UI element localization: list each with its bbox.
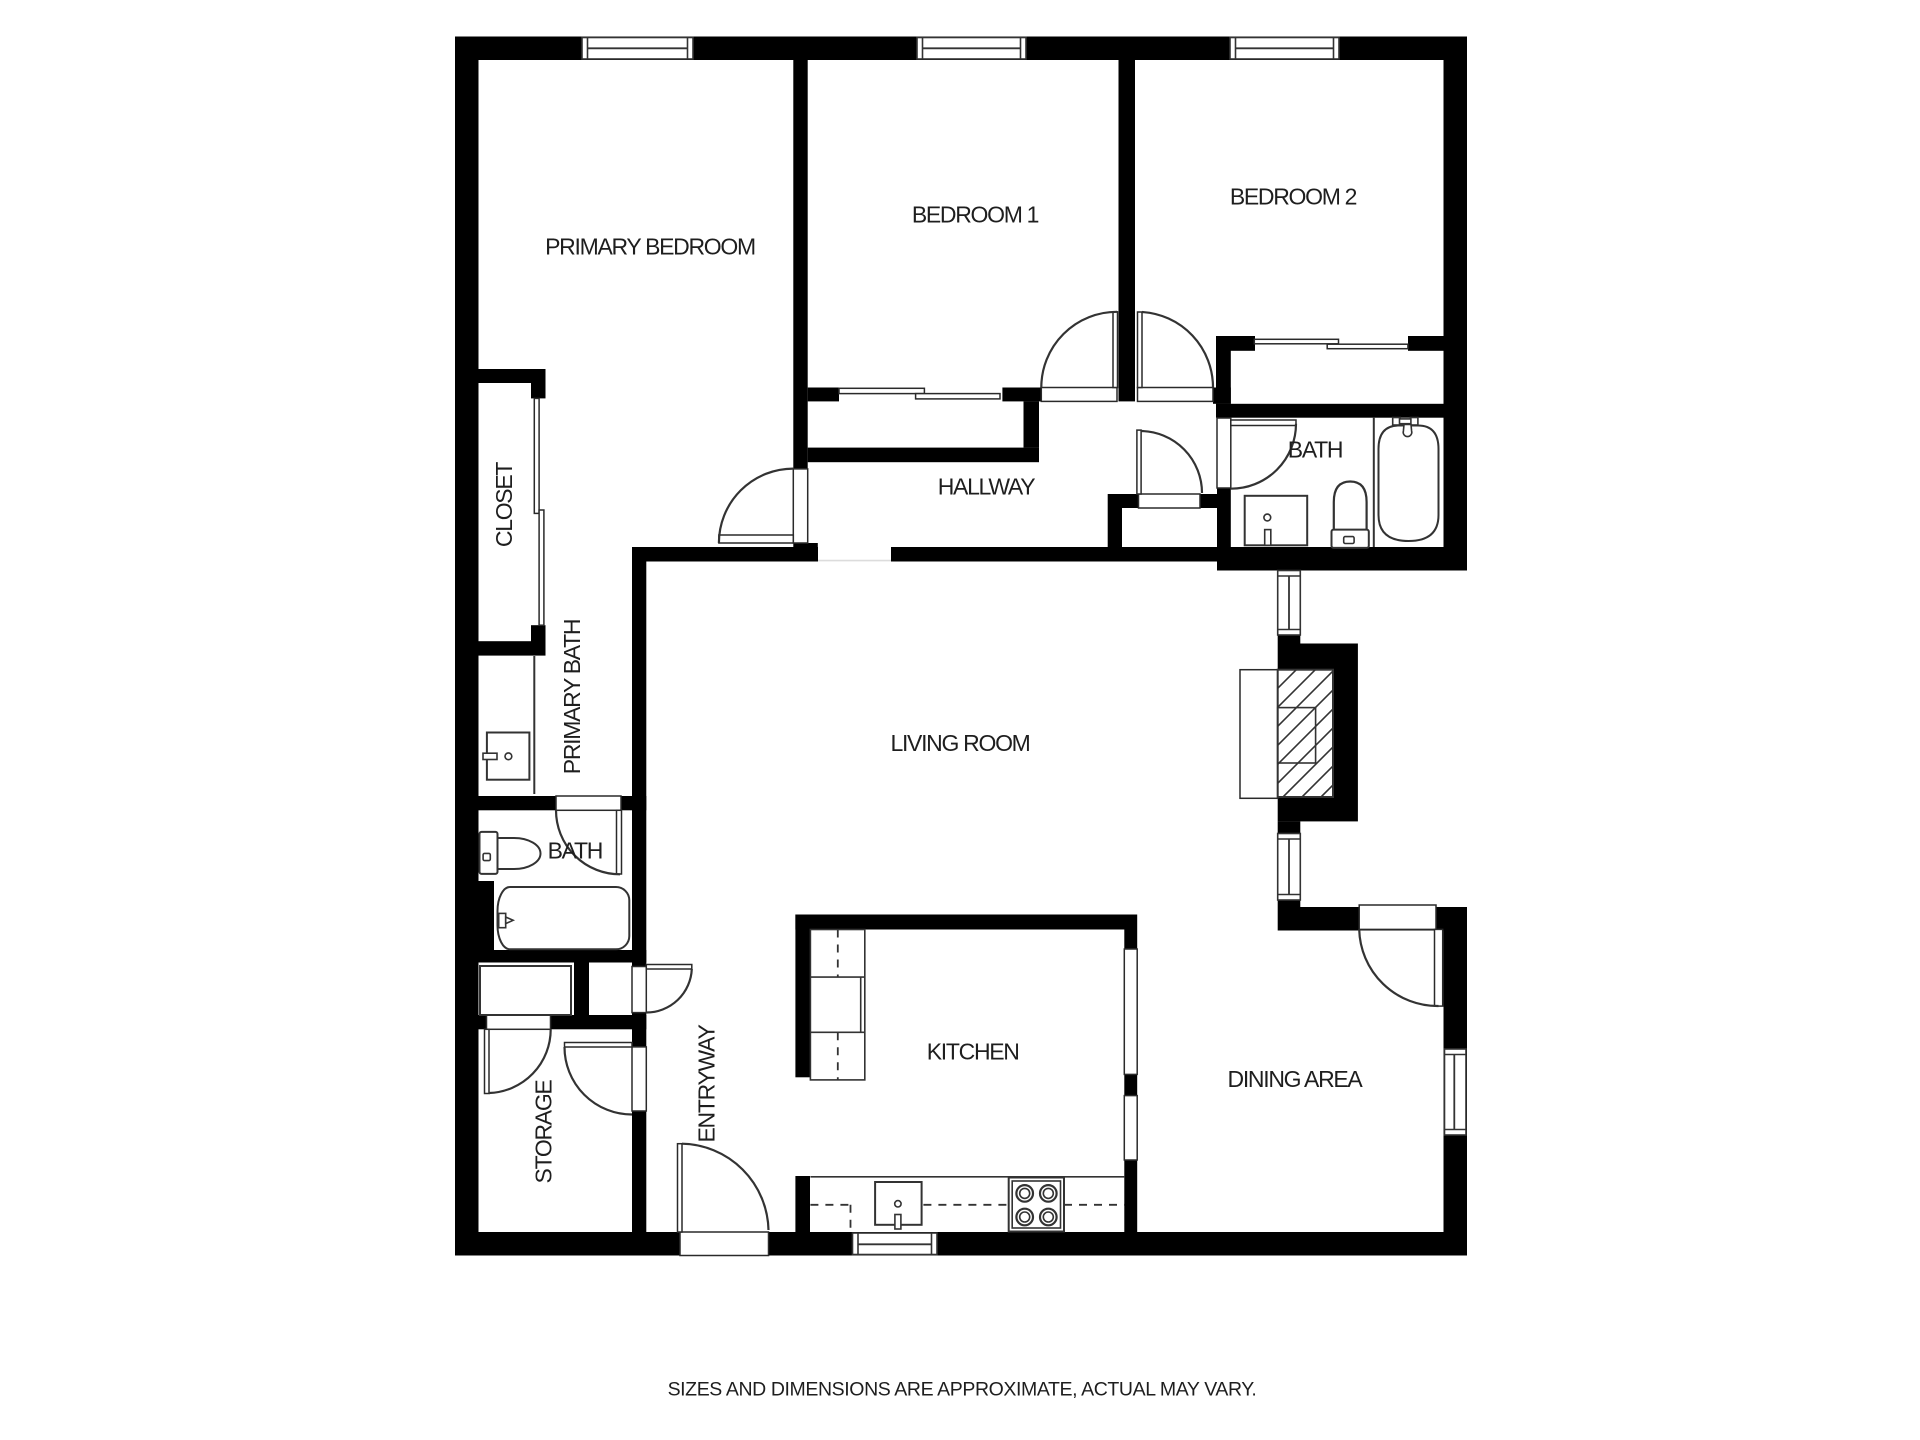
svg-text:BEDROOM 1: BEDROOM 1: [912, 202, 1039, 228]
svg-text:DINING AREA: DINING AREA: [1228, 1066, 1364, 1092]
svg-text:HALLWAY: HALLWAY: [938, 474, 1036, 500]
svg-text:PRIMARY BEDROOM: PRIMARY BEDROOM: [545, 234, 755, 260]
svg-text:BATH: BATH: [1288, 437, 1342, 463]
svg-text:CLOSET: CLOSET: [491, 462, 517, 547]
svg-text:ENTRYWAY: ENTRYWAY: [694, 1025, 720, 1143]
svg-text:PRIMARY BATH: PRIMARY BATH: [559, 620, 585, 774]
svg-text:LIVING ROOM: LIVING ROOM: [890, 730, 1029, 756]
svg-text:KITCHEN: KITCHEN: [927, 1039, 1019, 1065]
svg-text:BATH: BATH: [548, 838, 602, 864]
svg-text:BEDROOM 2: BEDROOM 2: [1230, 184, 1357, 210]
svg-text:SIZES AND DIMENSIONS ARE APPRO: SIZES AND DIMENSIONS ARE APPROXIMATE, AC…: [668, 1379, 1257, 1401]
svg-text:STORAGE: STORAGE: [531, 1080, 557, 1184]
